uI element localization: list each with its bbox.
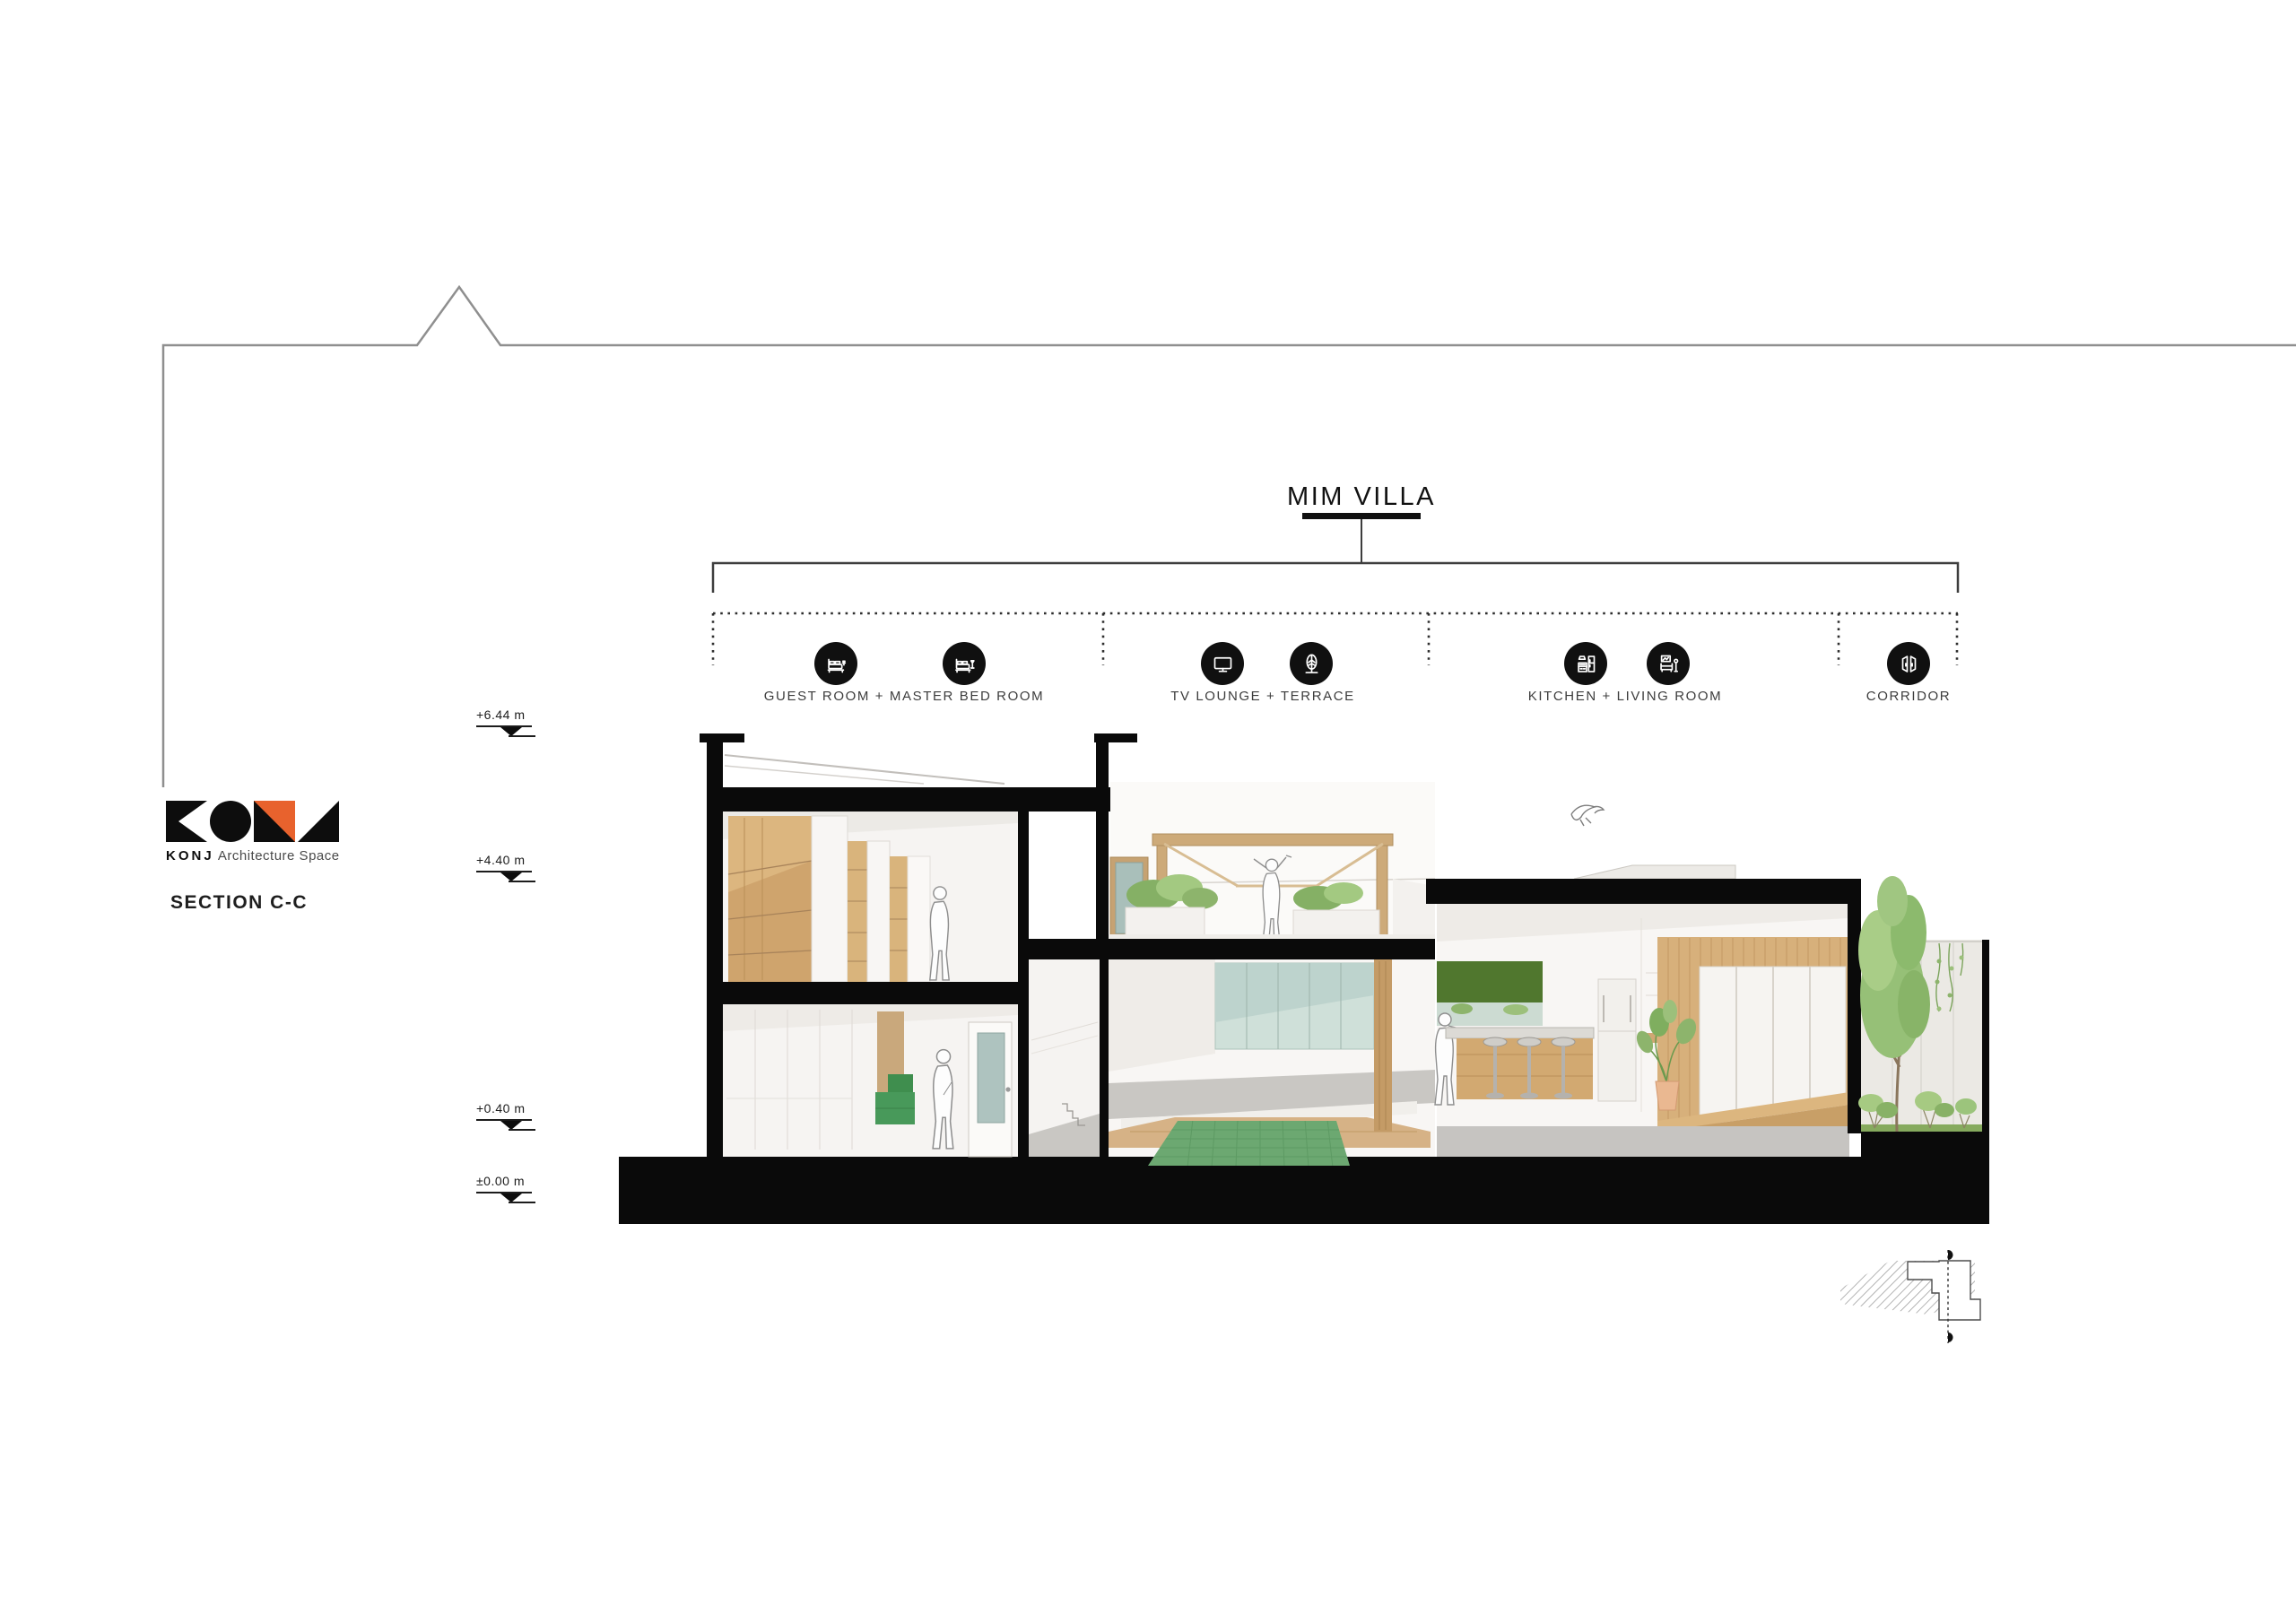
- terrace-slab: [1109, 939, 1435, 959]
- kitchen-roof-slab: [1426, 879, 1861, 904]
- tv-lounge: [1109, 959, 1435, 1167]
- architecture-sheet: MIM VILLA: [0, 0, 2296, 1623]
- logo-j-glyph: [298, 801, 339, 842]
- kitchen-living: [1426, 865, 1861, 1157]
- tree-leaf-icon: [1290, 642, 1333, 685]
- logo-k-glyph: [166, 801, 207, 842]
- kitchen-units-icon: [1564, 642, 1607, 685]
- logo-glyphs: [166, 801, 340, 842]
- zone-label-kitchen-living: KITCHEN + LIVING ROOM: [1528, 689, 1723, 704]
- bed-with-lamp-icon: [943, 642, 986, 685]
- lounge-glass-wall: [1215, 963, 1374, 1049]
- zone-label-corridor: CORRIDOR: [1866, 689, 1951, 704]
- level-label-644: +6.44 m: [476, 707, 525, 722]
- zone-bracket: [713, 563, 1958, 593]
- double-bed-icon: [814, 642, 857, 685]
- logo-n-glyph: [254, 801, 295, 842]
- title-underline: [1302, 513, 1421, 519]
- logo-tagline-text: Architecture Space: [218, 848, 340, 864]
- detail-marker-top: [1948, 1250, 1953, 1260]
- zone-dotted-ruler: [713, 613, 1958, 665]
- lounge-wood-column: [1374, 959, 1392, 1132]
- sofa-lamp-icon: [1647, 642, 1690, 685]
- section-drawing: [619, 726, 2000, 1228]
- logo-brand-text: KONJ: [166, 848, 214, 864]
- roof-skylight: [1574, 865, 1735, 879]
- upper-wardrobe-wood: [728, 816, 812, 982]
- boundary-wall: [1982, 940, 1989, 1133]
- fridge: [1598, 979, 1636, 1101]
- bird-sketch: [1571, 805, 1604, 826]
- level-label-440: +4.40 m: [476, 853, 525, 867]
- pool: [1147, 1119, 1352, 1167]
- open-doors-icon: [1887, 642, 1930, 685]
- kitchen-window: [1437, 1002, 1543, 1026]
- kitchen-right-wall: [1848, 879, 1861, 1133]
- kitchen-backsplash-green: [1437, 961, 1543, 1002]
- detail-marker-bottom: [1948, 1332, 1953, 1342]
- corridor-courtyard: [1858, 876, 1989, 1133]
- project-title: MIM VILLA: [1287, 482, 1436, 512]
- kitchen-floor: [1437, 1126, 1849, 1157]
- section-label: SECTION C-C: [170, 892, 308, 914]
- wall-detail-symbol: [1839, 1248, 2005, 1351]
- bedroom-door: [969, 1022, 1012, 1157]
- terrace: [1109, 782, 1435, 946]
- logo-wordmark: KONJ Architecture Space: [166, 848, 340, 864]
- level-datum-symbols: [476, 726, 535, 1202]
- level-label-000: ±0.00 m: [476, 1174, 525, 1188]
- tv-icon: [1201, 642, 1244, 685]
- logo-block: KONJ Architecture Space: [166, 801, 340, 864]
- level-label-040: +0.40 m: [476, 1101, 525, 1115]
- logo-o-glyph: [210, 801, 251, 842]
- zone-label-tv-terrace: TV LOUNGE + TERRACE: [1170, 689, 1355, 704]
- zone-label-guest-master: GUEST ROOM + MASTER BED ROOM: [764, 689, 1044, 704]
